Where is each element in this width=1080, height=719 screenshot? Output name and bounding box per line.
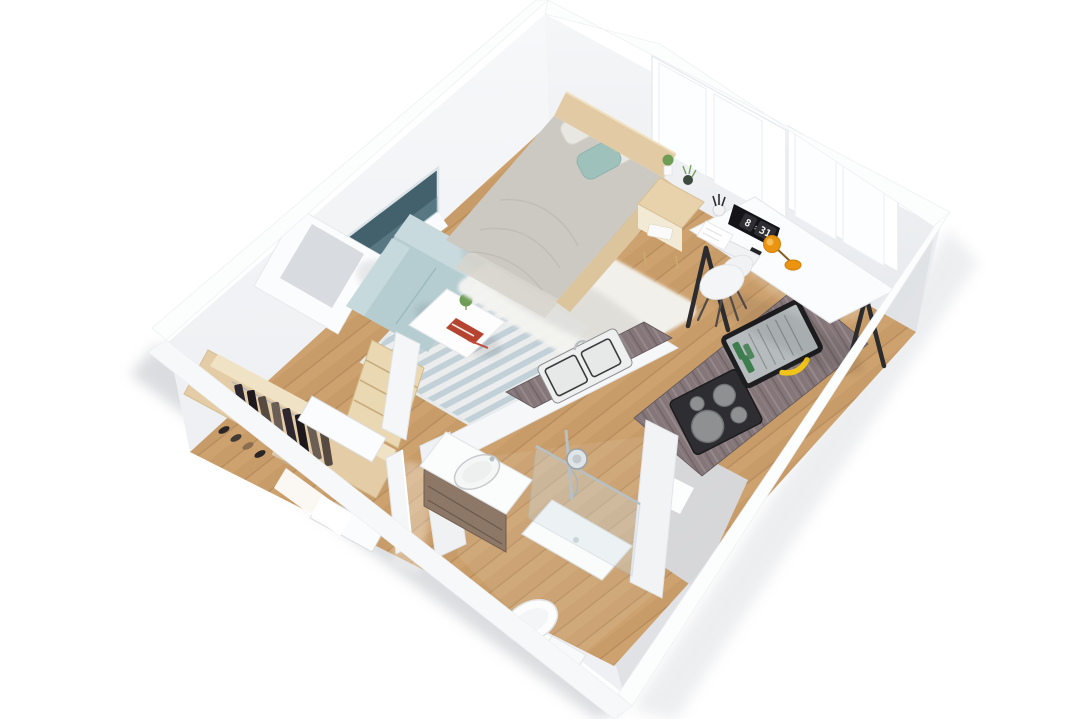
pen-cup bbox=[713, 204, 725, 216]
lamp-base bbox=[785, 260, 801, 270]
vanity-faucet bbox=[490, 457, 495, 462]
lamp-glow bbox=[767, 239, 774, 246]
floor-plan-render: 8 31 : bbox=[0, 0, 1080, 719]
plant-1 bbox=[663, 155, 674, 166]
white-vase bbox=[664, 166, 672, 175]
shower-head-center bbox=[573, 455, 582, 464]
dark-pot bbox=[683, 175, 693, 185]
floor-plan-svg: 8 31 : bbox=[0, 0, 1080, 719]
